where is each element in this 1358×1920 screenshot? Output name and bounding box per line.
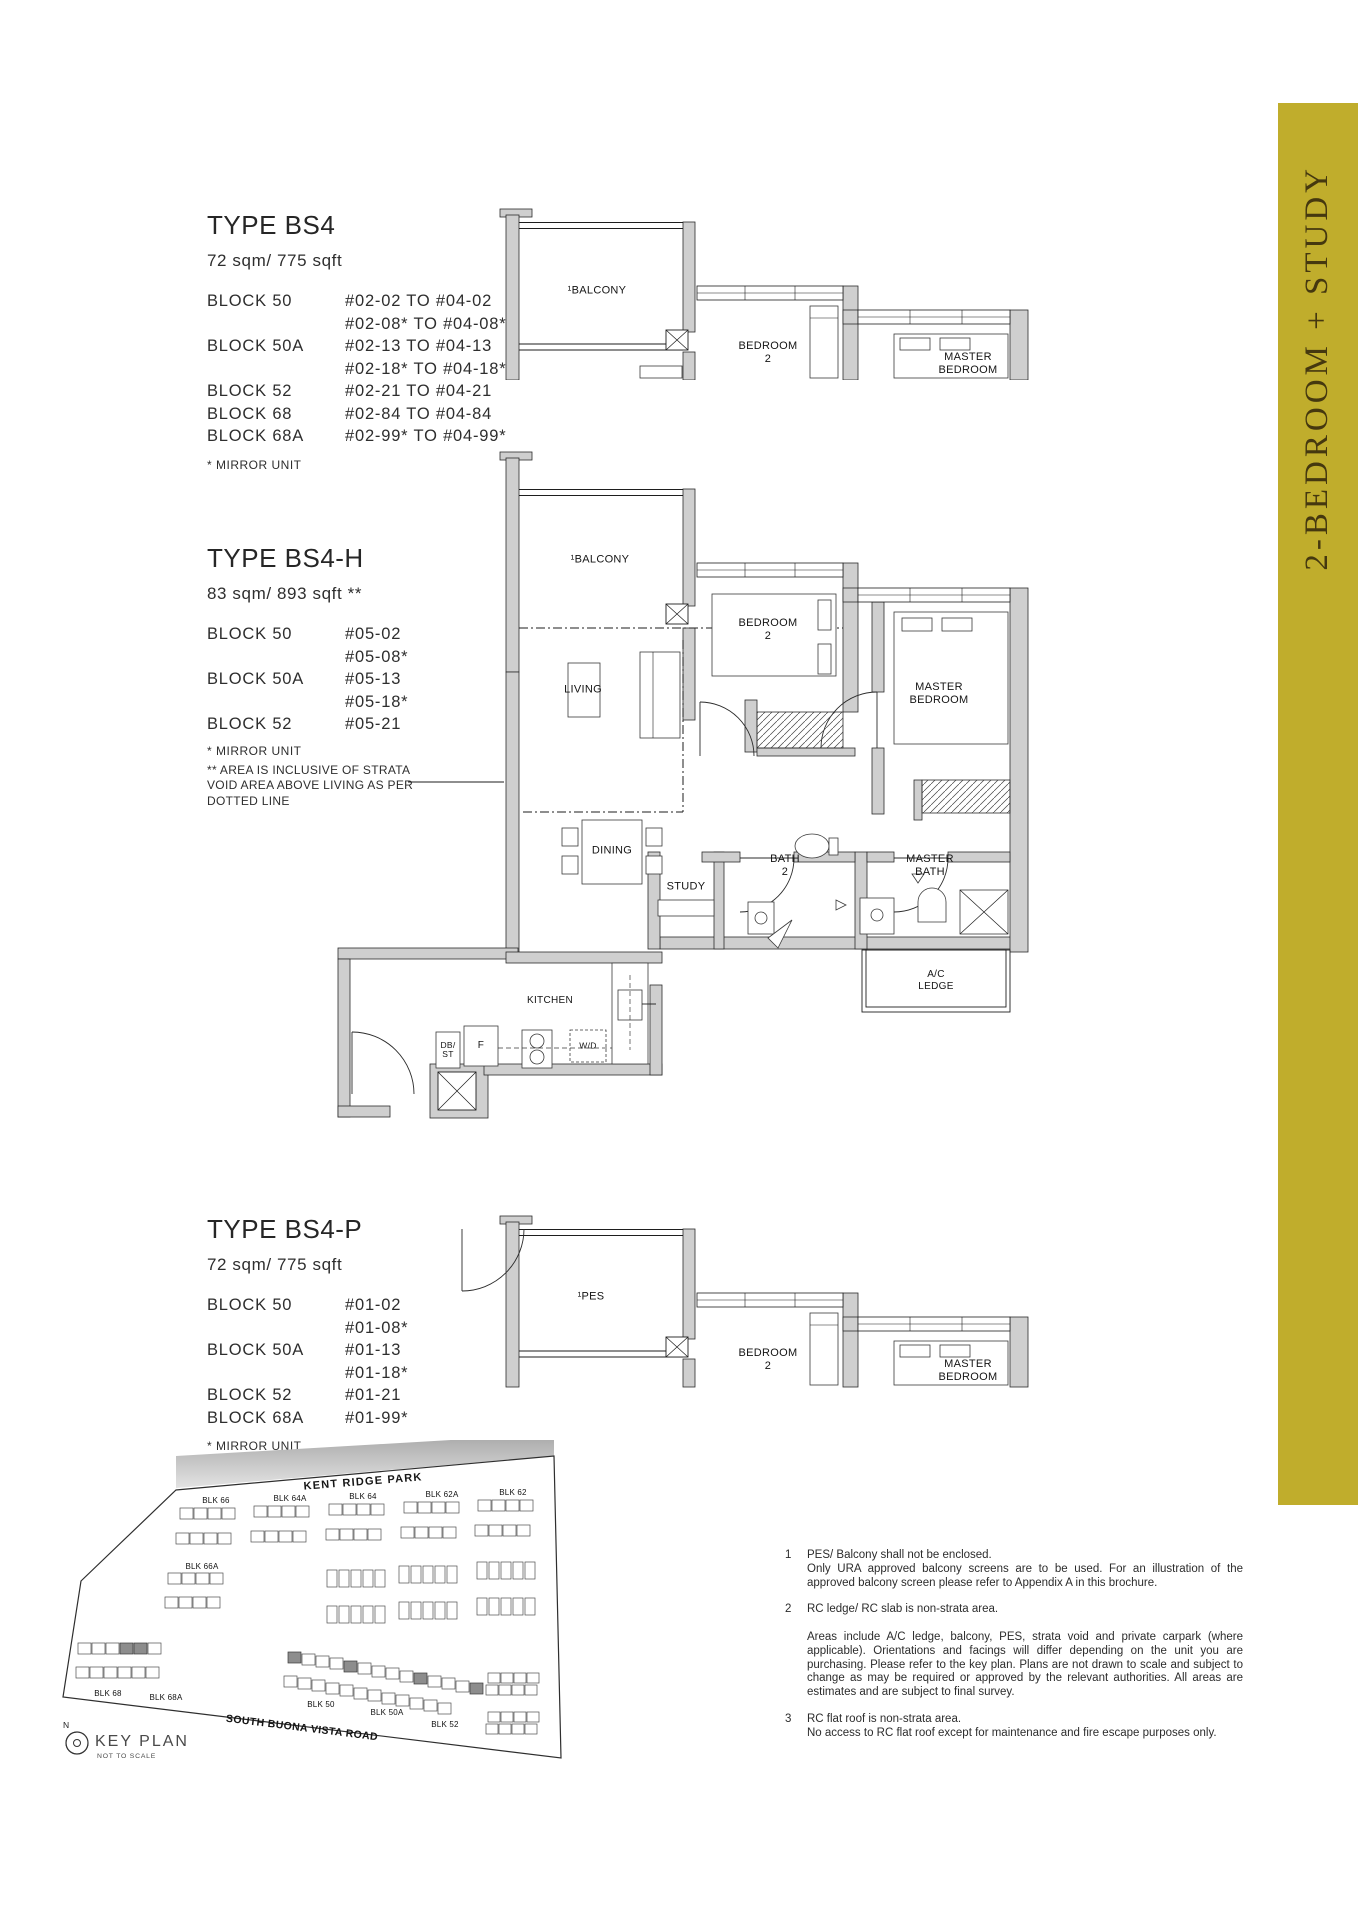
shaft-x-icon <box>666 330 688 350</box>
blk-68a-label: BLK 68A <box>150 1693 183 1702</box>
north-compass-icon <box>66 1732 88 1754</box>
table-row: #01-08* <box>207 1317 408 1340</box>
building-cluster-blk62 <box>475 1500 533 1536</box>
kitchen-fixtures <box>436 963 656 1068</box>
room-label-kitchen: KITCHEN <box>527 995 573 1007</box>
utility-shaft-icon <box>438 1072 476 1110</box>
room-label-living: LIVING <box>564 683 602 696</box>
table-row: BLOCK 52#02-21 TO #04-21 <box>207 380 506 403</box>
room-label-bedroom2: BEDROOM 2 <box>739 340 798 366</box>
building-cluster-blk68 <box>76 1643 161 1678</box>
building-cluster-blk64 <box>326 1504 384 1540</box>
blk-66-label: BLK 66 <box>202 1496 230 1505</box>
category-side-tab-label: 2-BEDROOM + STUDY <box>1299 165 1336 571</box>
master-bath-fixtures <box>860 874 1008 934</box>
shaft-x-icon <box>666 1337 688 1357</box>
room-label-dining: DINING <box>592 844 632 857</box>
note-2: 2 RC ledge/ RC slab is non-strata area. … <box>785 1603 1243 1700</box>
note-number: 2 <box>785 1603 807 1700</box>
keyplan-title: KEY PLAN <box>95 1733 189 1750</box>
north-label: N <box>63 1720 69 1730</box>
building-cluster-blk62a <box>401 1502 459 1538</box>
note-paragraph: Areas include A/C ledge, balcony, PES, s… <box>807 1631 1243 1700</box>
blk-50-label: BLK 50 <box>307 1700 335 1709</box>
room-label-bedroom2: BEDROOM 2 <box>739 1347 798 1373</box>
table-row: BLOCK 68A#01-99* <box>207 1407 408 1430</box>
note-heading: RC ledge/ RC slab is non-strata area. <box>807 1603 1243 1617</box>
type-bs4p-title: TYPE BS4-P <box>207 1216 408 1242</box>
blk-64-label: BLK 64 <box>349 1492 377 1501</box>
type-bs4p-info: TYPE BS4-P 72 sqm/ 775 sqft BLOCK 50#01-… <box>207 1216 408 1453</box>
table-row: BLOCK 50A#01-13 <box>207 1339 408 1362</box>
room-label-balcony: ¹BALCONY <box>571 553 630 566</box>
type-bs4p-area: 72 sqm/ 775 sqft <box>207 1256 408 1273</box>
room-label-pes: ¹PES <box>578 1290 605 1303</box>
building-cluster-blk66 <box>176 1508 235 1544</box>
note-paragraph: Only URA approved balcony screens are to… <box>807 1563 1243 1591</box>
legal-notes: 1 PES/ Balcony shall not be enclosed. On… <box>785 1549 1243 1754</box>
blk-50a-label: BLK 50A <box>371 1708 404 1717</box>
table-row: BLOCK 68A#02-99* TO #04-99* <box>207 425 506 448</box>
floorplan-type-bs4h <box>330 450 1030 1125</box>
building-cluster-mid <box>327 1562 535 1623</box>
table-row: BLOCK 68#02-84 TO #04-84 <box>207 403 506 426</box>
study-desk <box>658 900 714 916</box>
note-heading: RC flat roof is non-strata area. <box>807 1713 1243 1727</box>
room-label-master-bedroom: MASTER BEDROOM <box>939 351 998 377</box>
category-side-tab: 2-BEDROOM + STUDY <box>1278 103 1358 1505</box>
wardrobe <box>757 712 843 748</box>
key-plan: KENT RIDGE PARK <box>40 1440 600 1770</box>
note-number: 3 <box>785 1713 807 1741</box>
label-washer-dryer: W/D <box>579 1042 596 1051</box>
note-heading: PES/ Balcony shall not be enclosed. <box>807 1549 1243 1563</box>
note-paragraph: No access to RC flat roof except for mai… <box>807 1727 1243 1741</box>
blk-62-label: BLK 62 <box>499 1488 527 1497</box>
note-1: 1 PES/ Balcony shall not be enclosed. On… <box>785 1549 1243 1590</box>
table-row: #01-18* <box>207 1362 408 1385</box>
room-label-ac-ledge: A/C LEDGE <box>918 969 953 993</box>
room-label-study: STUDY <box>667 880 706 893</box>
road-label: SOUTH BUONA VISTA ROAD <box>225 1713 378 1744</box>
note-number: 1 <box>785 1549 807 1590</box>
wardrobe <box>922 780 1010 813</box>
room-label-master-bath: MASTER BATH <box>906 853 954 879</box>
type-bs4p-table: BLOCK 50#01-02 #01-08* BLOCK 50A#01-13 #… <box>207 1294 408 1429</box>
table-row: BLOCK 52#01-21 <box>207 1384 408 1407</box>
label-fridge: F <box>478 1040 484 1052</box>
bath2-fixtures <box>748 834 846 948</box>
building-cluster-blk52-east <box>486 1673 539 1734</box>
table-row: BLOCK 50#01-02 <box>207 1294 408 1317</box>
blk-64a-label: BLK 64A <box>274 1494 307 1503</box>
keyplan-subtitle: NOT TO SCALE <box>97 1753 156 1760</box>
room-label-bath2: BATH 2 <box>770 853 800 879</box>
room-label-balcony: ¹BALCONY <box>568 284 627 297</box>
master-furniture <box>894 612 1010 813</box>
room-label-master-bedroom: MASTER BEDROOM <box>939 1358 998 1384</box>
room-label-master-bedroom: MASTER BEDROOM <box>910 681 969 707</box>
blk-52-label: BLK 52 <box>431 1720 459 1729</box>
room-label-bedroom2: BEDROOM 2 <box>739 617 798 643</box>
blk-68-label: BLK 68 <box>94 1689 122 1698</box>
shaft-x-icon <box>666 604 688 624</box>
blk-66a-label: BLK 66A <box>186 1562 219 1571</box>
note-3: 3 RC flat roof is non-strata area. No ac… <box>785 1713 1243 1741</box>
building-cluster-blk64a <box>251 1506 309 1542</box>
brochure-page: 2-BEDROOM + STUDY TYPE BS4 72 sqm/ 775 s… <box>0 0 1358 1920</box>
label-db-st: DB/ ST <box>440 1041 455 1059</box>
blk-62a-label: BLK 62A <box>426 1490 459 1499</box>
building-cluster-blk66a <box>165 1573 223 1608</box>
balcony-parapet <box>519 490 683 496</box>
